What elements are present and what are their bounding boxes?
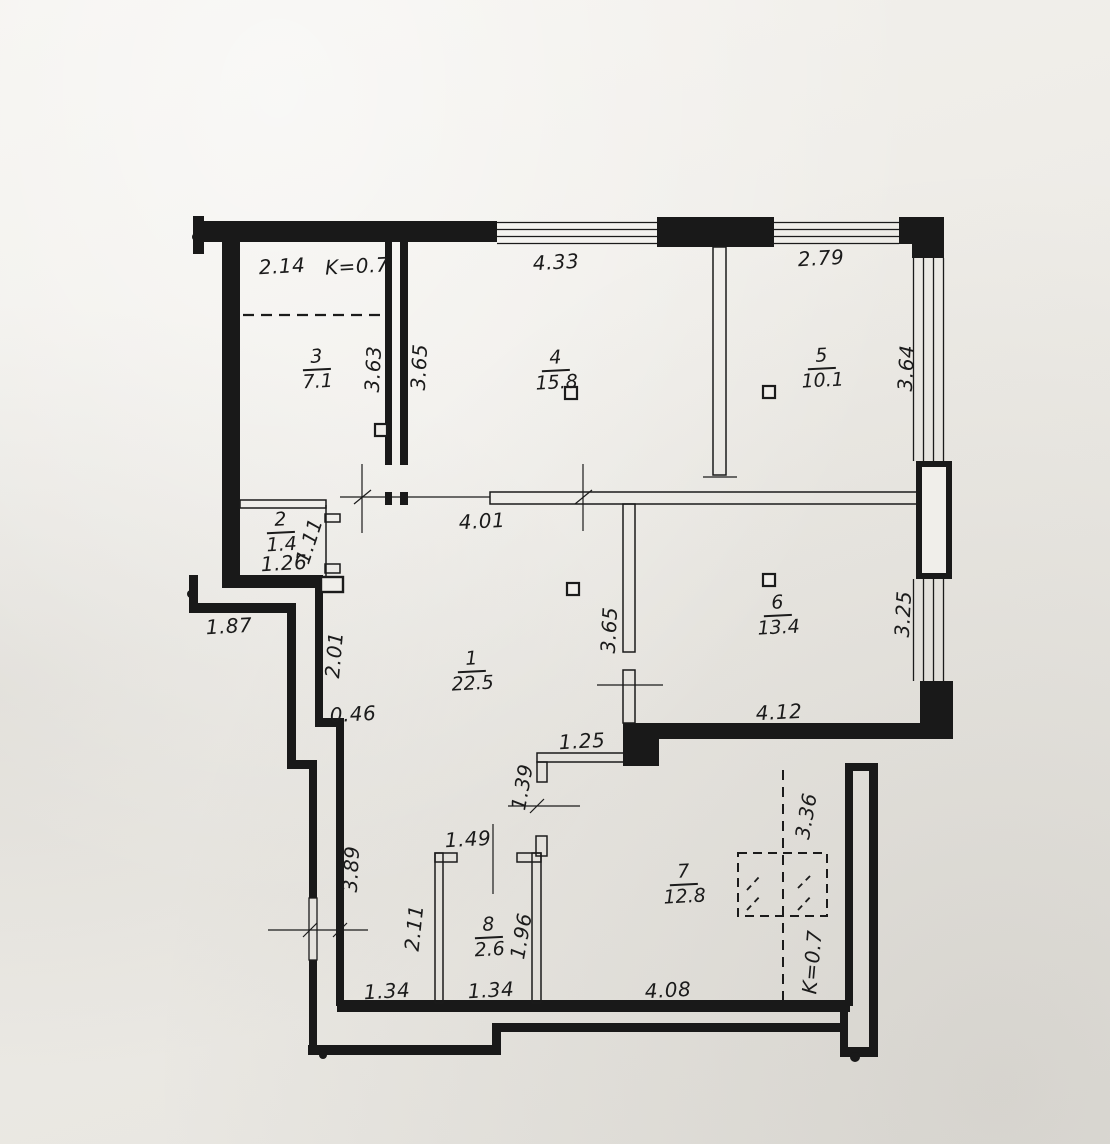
- room-7-number: 7: [669, 862, 698, 886]
- outlet-squares: [375, 386, 775, 595]
- room-3-label: 3 7.1: [301, 345, 334, 393]
- dim-room6-width: 4.12: [755, 699, 803, 725]
- dim-left-wall-height: 3.89: [338, 845, 364, 893]
- dim-room4-height: 3.65: [406, 343, 432, 391]
- room-4-label: 4 15.8: [534, 345, 579, 394]
- room-1-label: 1 22.5: [450, 646, 495, 695]
- dim-ledge-width: 1.87: [205, 613, 253, 639]
- room-4-area: 15.8: [535, 370, 578, 394]
- room-3-number: 3: [302, 347, 331, 371]
- right-wall-pier: [919, 464, 949, 576]
- dim-room1-width: 4.01: [458, 508, 506, 534]
- dim-hall-partition-height: 3.65: [596, 606, 622, 654]
- room-8-number: 8: [474, 915, 503, 939]
- room-1-number: 1: [457, 649, 486, 673]
- room-8-area: 2.6: [474, 938, 505, 961]
- room-4-number: 4: [541, 348, 570, 372]
- dim-room3-width: 2.14: [258, 253, 306, 279]
- dim-corridor-width: 1.34: [363, 978, 411, 1004]
- dim-room4-width: 4.33: [532, 249, 580, 275]
- room-8-label: 8 2.6: [473, 913, 506, 961]
- room-5-label: 5 10.1: [800, 343, 845, 392]
- dim-room8-top-width: 1.49: [444, 826, 492, 852]
- dim-room5-width: 2.79: [797, 245, 845, 271]
- dim-room3-height: 3.63: [360, 345, 386, 393]
- dim-ledge-height: 2.01: [320, 631, 348, 679]
- room-2-number: 2: [266, 510, 295, 534]
- room-7-label: 7 12.8: [662, 859, 707, 908]
- floorplan-page: 2.14 K=0.7 4.33 2.79 1.26 4.01 1.87 0.46…: [0, 0, 1110, 1144]
- room-7-area: 12.8: [663, 884, 706, 908]
- dim-room7-width: 4.08: [644, 977, 692, 1003]
- room-6-label: 6 13.4: [756, 590, 801, 639]
- dim-step-width: 0.46: [329, 701, 377, 727]
- dim-hall-width: 1.25: [558, 728, 606, 754]
- room-2-area: 1.4: [266, 533, 297, 556]
- room-2-label: 2 1.4: [265, 508, 298, 556]
- room-5-area: 10.1: [801, 368, 844, 392]
- dim-room5-height: 3.64: [893, 344, 919, 392]
- loft-coefficient-top: K=0.7: [324, 252, 389, 279]
- room-6-number: 6: [763, 593, 792, 617]
- dim-room8-width: 1.34: [467, 977, 515, 1003]
- dim-room6-height: 3.25: [890, 590, 916, 638]
- room-1-area: 22.5: [451, 671, 494, 695]
- room-5-number: 5: [807, 346, 836, 370]
- floorplan-drawing: [0, 0, 1110, 1144]
- dim-corridor-height: 2.11: [400, 904, 429, 953]
- room-3-area: 7.1: [302, 370, 333, 393]
- room-6-area: 13.4: [757, 615, 800, 639]
